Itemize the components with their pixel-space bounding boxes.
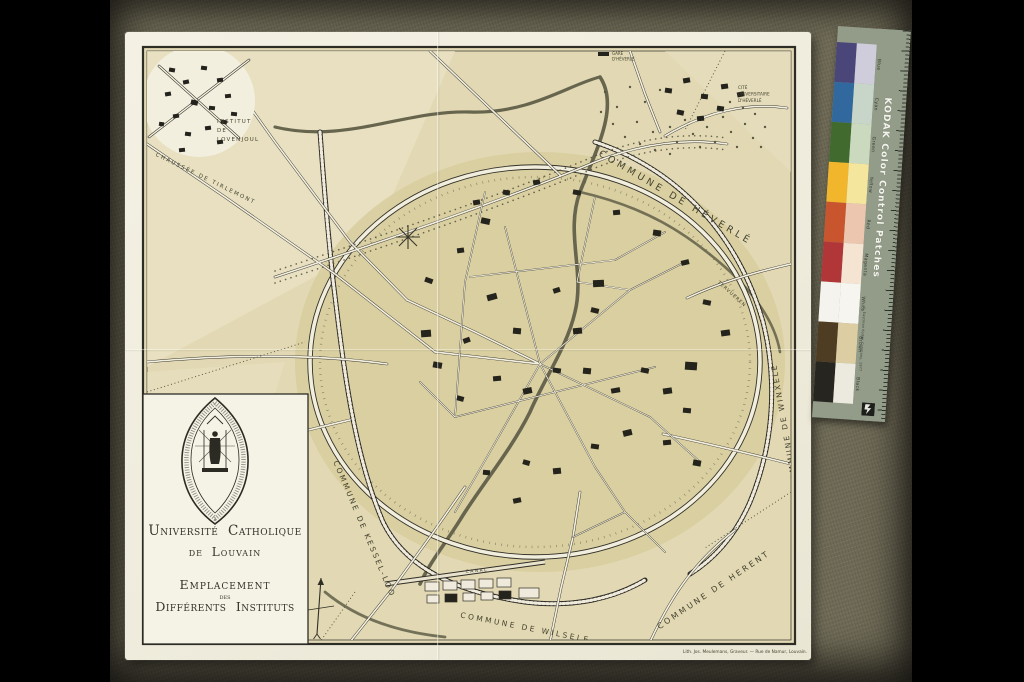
- patch-blue-solid: [834, 42, 857, 83]
- label-gare-line2: D'HÉVERLÉ: [612, 57, 635, 62]
- label-institut-line2: DE: [217, 128, 227, 134]
- patch-red-tint: [844, 203, 867, 244]
- map-drawing: INSTITUT DE LOVENJOUL CHAUSSÉE DE TIRLEM…: [125, 32, 811, 660]
- kodak-patch-row-yellow: [826, 162, 869, 205]
- cartouche-title-line1: Université Catholique: [148, 523, 301, 539]
- kodak-patch-row-brown: [816, 321, 859, 364]
- label-institut-line1: INSTITUT: [217, 119, 252, 125]
- patch-green-tint: [849, 123, 872, 164]
- patch-white-tint: [838, 283, 861, 324]
- felt-mat-background: INSTITUT DE LOVENJOUL CHAUSSÉE DE TIRLEM…: [110, 0, 912, 682]
- cartouche-subtitle-line3: Différents Instituts: [155, 599, 294, 614]
- patch-yellow-solid: [826, 162, 849, 203]
- gare-heverle-building: [598, 52, 609, 56]
- kodak-patch-row-black: [813, 361, 856, 404]
- kodak-patch-row-cyan: [832, 82, 875, 125]
- patch-red-solid: [824, 202, 847, 243]
- patch-black-tint: [833, 363, 856, 404]
- kodak-patch-row-green: [829, 122, 872, 165]
- patch-blue-tint: [854, 43, 877, 84]
- patch-magenta-tint: [841, 243, 864, 284]
- patch-brown-tint: [836, 323, 859, 364]
- patch-cyan-tint: [852, 83, 875, 124]
- map-sheet: INSTITUT DE LOVENJOUL CHAUSSÉE DE TIRLEM…: [125, 32, 811, 660]
- photo-of-louvain-map: { "scene": { "bar_color": "#000000", "ma…: [0, 0, 1024, 682]
- patch-brown-solid: [816, 321, 839, 362]
- label-gare-line1: GARE: [612, 51, 624, 56]
- title-cartouche: Université Catholique de Louvain Emplace…: [143, 394, 308, 644]
- kodak-patch-row-white: [818, 281, 861, 324]
- cartouche-title-line2: de Louvain: [189, 545, 262, 559]
- patch-cyan-solid: [832, 82, 855, 123]
- patch-white-solid: [818, 281, 841, 322]
- kodak-patch-row-blue: [834, 42, 877, 85]
- patch-yellow-tint: [846, 163, 869, 204]
- kodak-k-logo-icon: [861, 402, 875, 416]
- patch-green-solid: [829, 122, 852, 163]
- label-institut-line3: LOVENJOUL: [217, 137, 259, 143]
- kodak-color-strip: BlueCyanGreenYellowRedMagentaWhiteBrownB…: [812, 26, 911, 422]
- kodak-patch-row-magenta: [821, 242, 864, 285]
- patch-black-solid: [813, 361, 836, 402]
- cartouche-subtitle-line1: Emplacement: [180, 577, 271, 592]
- label-cite-line2: UNIVERSITAIRE: [738, 92, 770, 97]
- label-cite-line3: D'HÉVERLÉ: [738, 98, 762, 103]
- label-cite-line1: CITÉ: [738, 85, 748, 90]
- printer-imprint: Lith. Jos. Meulemans, Graveur. — Rue de …: [683, 649, 807, 655]
- kodak-patch-row-red: [824, 202, 867, 245]
- patch-magenta-solid: [821, 242, 844, 283]
- park-garden: [396, 225, 420, 249]
